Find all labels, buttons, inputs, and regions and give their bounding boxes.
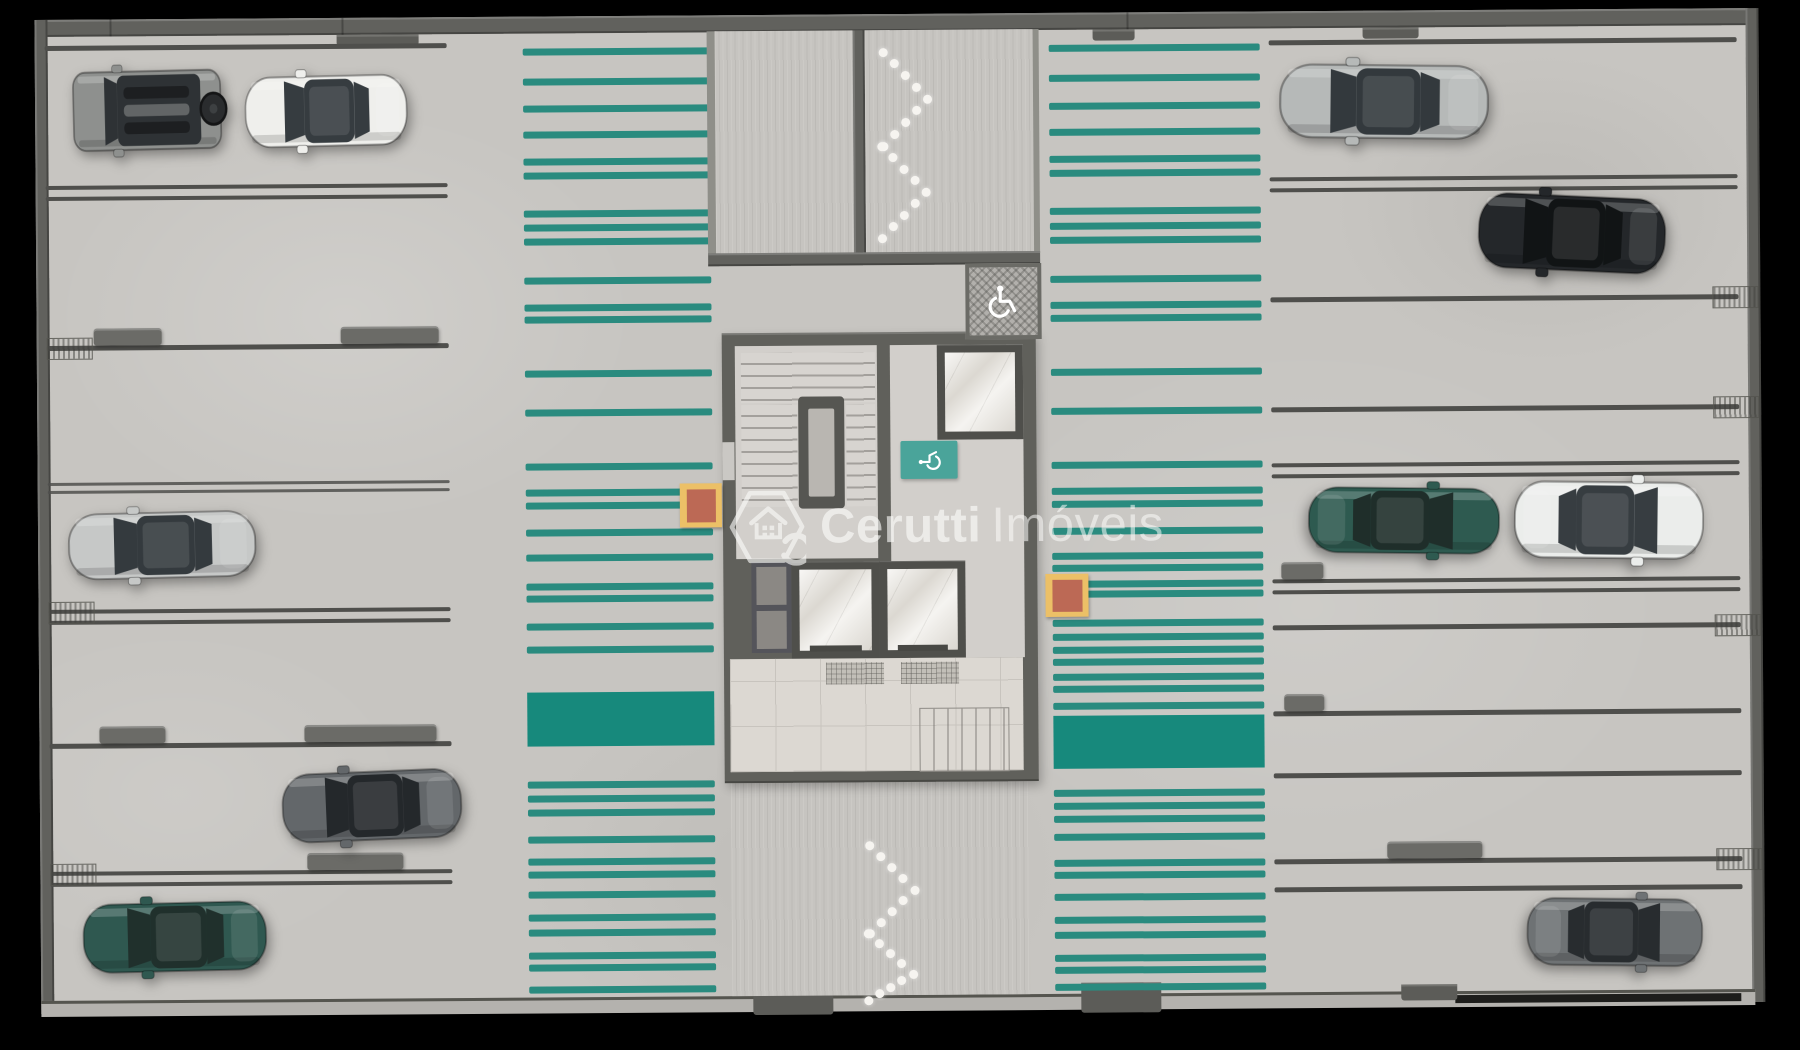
sedan-white-right (1511, 470, 1706, 570)
walkway-stripe (525, 315, 712, 323)
chevron-dot (888, 153, 897, 162)
wheelchair-icon (916, 447, 942, 473)
chevron-dot (886, 949, 895, 958)
wheel-stop (1387, 841, 1482, 859)
walkway-stripe (524, 237, 711, 245)
chevron-dot (912, 106, 921, 115)
sedan-teal-left (80, 891, 270, 984)
walkway-stripe (1055, 953, 1266, 961)
elevator-door-sill (810, 645, 862, 651)
walkway-stripe (1053, 672, 1264, 680)
suv-gray-top-left (70, 61, 232, 159)
walkway-stripe (528, 780, 715, 788)
hatchback-gray-left (278, 758, 466, 854)
chevron-dot (875, 939, 884, 948)
walkway-stripe (529, 890, 716, 898)
detail-symbol (1715, 614, 1761, 636)
wheel-stop (307, 852, 403, 870)
chevron-dot (888, 907, 897, 916)
chevron-dot (877, 142, 886, 151)
wheelchair-icon (984, 282, 1022, 320)
walkway-stripe (526, 528, 713, 536)
walkway-stripe (1055, 965, 1266, 973)
fire-equipment-marker-inner (1052, 580, 1082, 612)
pedestrian-walkway-right (1048, 11, 1266, 1006)
chevron-dot (863, 929, 872, 938)
detail-symbol (49, 602, 95, 624)
walkway-solid-band (1053, 714, 1264, 768)
walkway-stripe (1052, 563, 1263, 571)
core-door-opening (722, 442, 734, 480)
walkway-stripe (525, 408, 712, 416)
walkway-stripe (1053, 618, 1264, 626)
walkway-stripe (523, 157, 710, 165)
walkway-stripe (523, 77, 710, 85)
walkway-stripe (526, 594, 713, 602)
walkway-stripe (1052, 486, 1263, 494)
chevron-dot (910, 199, 919, 208)
walkway-stripe (1055, 982, 1266, 990)
chevron-dot (876, 918, 885, 927)
walkway-stripe (523, 47, 710, 55)
detail-symbol (1712, 286, 1758, 308)
walkway-stripe (524, 223, 711, 231)
walkway-stripe (1053, 701, 1264, 709)
walkway-stripe (1054, 858, 1265, 866)
wall-seam (341, 18, 343, 35)
walkway-stripe (1052, 526, 1263, 534)
walkway-stripe (1053, 657, 1264, 665)
walkway-stripe (524, 276, 711, 284)
walkway-stripe (524, 303, 711, 311)
walkway-stripe (528, 870, 715, 878)
walkway-stripe (528, 794, 715, 802)
ramp-direction-arrows (0, 0, 1796, 6)
walkway-stripe (529, 928, 716, 936)
chevron-dot (889, 59, 898, 68)
wall-seam (109, 19, 111, 36)
garage-floorplan-image: CeruttiImóveis (0, 0, 1800, 1050)
sedan-white-top-left (242, 64, 410, 158)
walkway-stripe (1054, 870, 1265, 878)
chevron-dot (890, 130, 899, 139)
walkway-stripe (1054, 832, 1265, 840)
walkway-stripe (1049, 154, 1260, 162)
parking-floorplan: CeruttiImóveis (0, 0, 1800, 1050)
ramp-top-lane-left (715, 30, 855, 255)
chevron-dot (911, 83, 920, 92)
walkway-stripe (1051, 313, 1262, 321)
walkway-stripe (1055, 915, 1266, 923)
chevron-dot (878, 48, 887, 57)
walkway-stripe (528, 835, 715, 843)
walkway-stripe (1049, 73, 1260, 81)
service-shaft-slot (756, 567, 786, 605)
chevron-dot (877, 234, 886, 243)
walkway-stripe (524, 209, 711, 217)
walkway-stripe (1053, 645, 1264, 653)
walkway-stripe (527, 622, 714, 630)
accessible-parking-sign (965, 263, 1042, 340)
walkway-stripe (1049, 127, 1260, 135)
walkway-stripe (529, 985, 716, 993)
walkway-stripe (523, 104, 710, 112)
hatchback-gray-right (1524, 888, 1705, 976)
walkway-stripe (526, 462, 713, 470)
walkway-stripe (1053, 684, 1264, 692)
elevator-door-sill (898, 645, 948, 651)
detail-symbol (50, 864, 96, 886)
stair-flight-upper (741, 352, 875, 403)
walkway-stripe (523, 130, 710, 138)
chevron-dot (864, 996, 873, 1005)
walkway-stripe (1052, 551, 1263, 559)
parking-rows (0, 0, 1796, 6)
chevron-dot (901, 118, 910, 127)
detail-symbol (47, 338, 93, 360)
walkway-stripe (1052, 460, 1263, 468)
walkway-stripe (1050, 300, 1261, 308)
sedan-silver-left (65, 501, 259, 590)
chevron-dot (886, 983, 895, 992)
wheel-stop (341, 326, 439, 344)
sedan-black-right (1474, 181, 1670, 286)
service-shaft-slot (757, 611, 787, 649)
chevron-dot (910, 885, 919, 894)
chevron-dot (875, 989, 884, 998)
sedan-silver-right-top (1277, 53, 1492, 149)
fire-equipment-marker (680, 483, 722, 527)
walkway-solid-band (527, 691, 714, 746)
walkway-stripe (529, 913, 716, 921)
walkway-stripe (1049, 43, 1260, 51)
stair-flight-right (846, 404, 876, 506)
entry-mat (826, 662, 884, 684)
walkway-stripe (529, 951, 716, 959)
walkway-stripe (529, 963, 716, 971)
wheel-stop (1284, 694, 1324, 711)
fire-equipment-marker-inner (687, 489, 716, 522)
walkway-stripe (1055, 892, 1266, 900)
walkway-stripe (1049, 101, 1260, 109)
wheel-stop (94, 328, 162, 345)
walkway-stripe (1054, 814, 1265, 822)
walkway-stripe (525, 369, 712, 377)
stair-flight-left (741, 405, 798, 507)
wheel-stop (1281, 562, 1323, 579)
chevron-dot (888, 222, 897, 231)
walkway-stripe (1051, 406, 1262, 414)
ramp-bottom (731, 781, 1030, 996)
chevron-dot (876, 852, 885, 861)
elevator-cab-floor (887, 569, 958, 650)
chevron-dot (900, 71, 909, 80)
floor-markers (0, 0, 1796, 6)
walkway-stripe (1052, 499, 1263, 507)
wall-pillar (1363, 27, 1419, 38)
detail-symbol (1716, 848, 1762, 870)
detail-symbol (1713, 396, 1759, 418)
walkway-stripe (526, 553, 713, 561)
walkway-stripe (1050, 168, 1261, 176)
walkway-stripe (1053, 632, 1264, 640)
accessible-route-sign (900, 441, 957, 479)
stair-core-void (808, 408, 835, 496)
walkway-stripe (528, 808, 715, 816)
walkway-stripe (524, 171, 711, 179)
walkway-stripe (1050, 274, 1261, 282)
chevron-dot (887, 863, 896, 872)
walkway-stripe (1054, 801, 1265, 809)
bottom-pillar (1401, 984, 1457, 1000)
walkway-stripe (1055, 930, 1266, 938)
walkway-stripe (528, 857, 715, 865)
walkway-stripe (1050, 221, 1261, 229)
accessibility-signs (0, 0, 1796, 6)
walkway-stripe (1050, 235, 1261, 243)
chevron-dot (865, 841, 874, 850)
entry-mat (901, 662, 959, 684)
fire-equipment-marker (1045, 574, 1088, 617)
walkway-stripe (1054, 788, 1265, 796)
walkway-stripe (526, 582, 713, 590)
lobby-stair-outline (919, 707, 1009, 772)
coupe-teal-right (1306, 477, 1503, 563)
parked-cars (0, 0, 1796, 6)
walkway-stripe (1051, 367, 1262, 375)
chevron-dot (899, 210, 908, 219)
chevron-dot (921, 187, 930, 196)
elevator-cab-floor (799, 569, 872, 651)
walkway-stripe (527, 645, 714, 653)
wheel-stop (99, 726, 165, 743)
wheel-stop (304, 724, 436, 742)
walkway-stripe (1050, 206, 1261, 214)
elevator-cab-floor (945, 352, 1016, 431)
chevron-dot (922, 94, 931, 103)
chevron-dot (909, 969, 918, 978)
chevron-dot (899, 164, 908, 173)
chevron-dot (910, 176, 919, 185)
